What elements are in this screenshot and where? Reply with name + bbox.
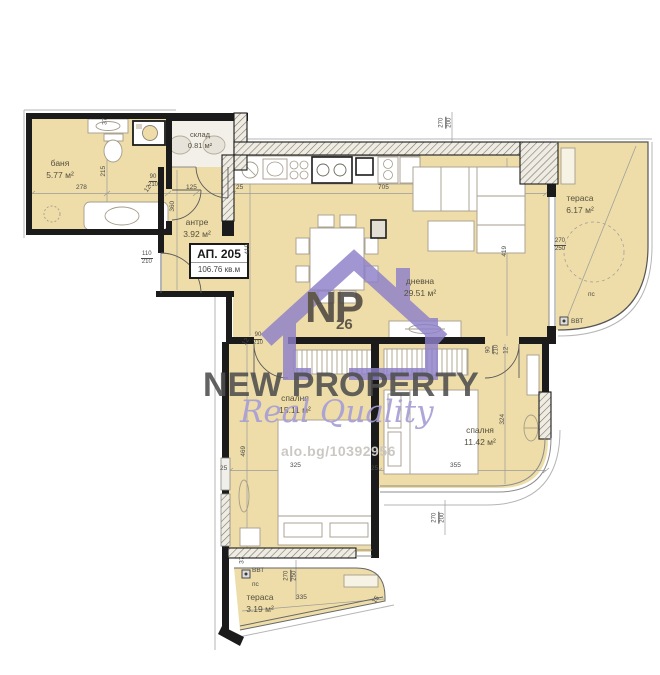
terrace-planter-icon	[561, 148, 575, 184]
window-segment	[221, 494, 230, 546]
room-label-storage: склад0.81 м²	[168, 130, 232, 151]
ps-label-terrace-bottom: пс	[252, 581, 259, 588]
dim-469: 469	[241, 446, 248, 457]
oven-icon	[356, 158, 373, 175]
dim-270-200-bottom: 270200	[431, 512, 446, 524]
pillow-icon	[330, 523, 368, 537]
unit-area: 106.76 кв.м	[191, 265, 247, 274]
washing-machine-icon	[133, 121, 165, 145]
ps-label-terrace-right: пс	[588, 291, 595, 298]
dim-360: 360	[170, 201, 177, 212]
dim-25-bed1-right: 25	[371, 466, 378, 473]
dim-90-210-bath-door: 90210	[148, 174, 158, 189]
nightstand-icon	[240, 528, 260, 546]
room-label-bathroom: баня5.77 м²	[38, 158, 82, 182]
pillow-icon	[284, 523, 322, 537]
sofa-icon	[413, 167, 525, 253]
window-segment	[221, 458, 230, 490]
shaft-column	[371, 220, 386, 238]
bathtub-basin	[105, 207, 139, 225]
dim-270-250-terrace-bottom: 270250	[283, 570, 298, 582]
dim-215: 215	[101, 166, 108, 177]
kitchen-counter	[234, 156, 420, 184]
dim-335: 335	[296, 595, 307, 602]
dim-270-250-terrace-right: 270250	[554, 238, 566, 253]
floor-plan: NP 26 АП. 205 106.76 кв.м баня5.77 м² ск…	[0, 0, 660, 675]
watermark-tagline: Real Quality	[240, 394, 420, 430]
vvt-label-terrace-bottom: ВВТ	[252, 567, 264, 574]
terrace-planter-icon	[344, 575, 378, 587]
dim-25-top: 25	[236, 185, 243, 192]
dim-324: 324	[500, 414, 507, 425]
dim-90-210-bed1-door: 90210	[253, 332, 263, 347]
unit-id: АП. 205	[191, 247, 247, 263]
watermark-listing-ref: alo.bg/10392956	[281, 443, 396, 459]
room-label-bedroom2: спалня11.42 м²	[450, 425, 510, 449]
dim-325: 325	[290, 463, 301, 470]
room-label-terrace-right: тераса6.17 м²	[550, 193, 610, 217]
dim-12-bed2-door: 12	[503, 347, 510, 354]
logo-text: NP	[305, 283, 363, 332]
floor-plan-drawing: NP 26	[0, 0, 660, 675]
dim-125: 125	[186, 185, 197, 192]
dim-37-top: 37	[102, 118, 109, 125]
dim-705: 705	[378, 185, 389, 192]
dim-90-210-bed2-door: 90210	[485, 345, 500, 355]
dim-419-right: 419	[502, 246, 509, 257]
dim-25-bed1-left: 25	[220, 466, 227, 473]
dim-110-210-entry-door: 110210	[141, 251, 153, 266]
logo-subtext: 26	[336, 316, 353, 333]
room-label-living: дневна29.51 м²	[385, 276, 455, 300]
dim-270-200-top: 270200	[438, 117, 453, 129]
toilet-bowl-icon	[104, 140, 122, 162]
coffee-table-icon	[428, 221, 474, 251]
dim-355: 355	[450, 463, 461, 470]
dim-419-left: 419	[245, 244, 252, 255]
room-label-terrace-bottom: тераса3.19 м²	[230, 592, 290, 616]
shelf-icon	[527, 355, 539, 395]
room-label-hallway: антре3.92 м²	[172, 217, 222, 241]
dim-278: 278	[76, 185, 87, 192]
vvt-label-terrace-right: ВВТ	[571, 318, 583, 325]
unit-info-box: АП. 205 106.76 кв.м	[189, 243, 249, 279]
dim-37-bottom: 37	[239, 557, 246, 564]
